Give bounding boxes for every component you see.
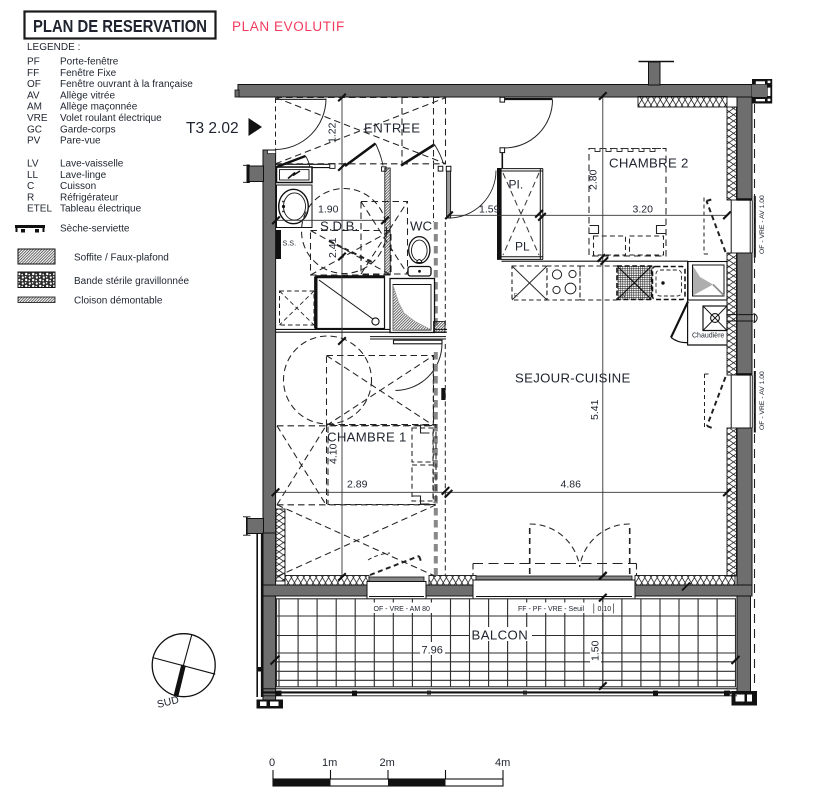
svg-text:Porte-fenêtre: Porte-fenêtre [60,57,119,68]
svg-text:ENTREE: ENTREE [364,121,421,136]
svg-text:Soffite / Faux-plafond: Soffite / Faux-plafond [74,253,169,264]
svg-text:Cloison démontable: Cloison démontable [74,296,163,307]
svg-text:2.41: 2.41 [327,237,339,258]
svg-text:1m: 1m [322,757,337,769]
svg-text:5.41: 5.41 [589,399,601,420]
svg-text:PF: PF [27,57,40,68]
svg-text:4.86: 4.86 [561,479,582,491]
svg-text:Tableau électrique: Tableau électrique [60,204,142,215]
svg-text:LEGENDE :: LEGENDE : [27,42,80,53]
svg-text:Garde-corps: Garde-corps [60,124,116,135]
svg-text:ETEL: ETEL [27,204,52,215]
svg-text:CHAMBRE 2: CHAMBRE 2 [609,156,689,171]
svg-text:0.10: 0.10 [598,606,612,613]
svg-text:Réfrigérateur: Réfrigérateur [60,192,119,203]
svg-text:LL: LL [27,170,39,181]
svg-text:1.90: 1.90 [318,204,339,216]
svg-text:1.59: 1.59 [479,204,500,216]
svg-text:0: 0 [269,757,275,769]
svg-text:GC: GC [27,124,42,135]
svg-text:Pare-vue: Pare-vue [60,136,101,147]
svg-text:Chaudière: Chaudière [692,333,724,340]
svg-text:SUD: SUD [156,694,181,711]
svg-text:SEJOUR-CUISINE: SEJOUR-CUISINE [515,371,631,386]
svg-text:T3 2.02: T3 2.02 [186,120,239,137]
svg-text:Fenêtre Fixe: Fenêtre Fixe [60,68,117,79]
svg-text:F.: F. [514,293,519,299]
svg-text:PLAN EVOLUTIF: PLAN EVOLUTIF [232,19,345,34]
svg-text:Allège vitrée: Allège vitrée [60,90,115,101]
svg-text:Bande stérile gravillonnée: Bande stérile gravillonnée [74,276,190,287]
svg-text:PL: PL [515,240,530,254]
svg-text:Sèche-serviette: Sèche-serviette [60,224,130,235]
svg-text:3.20: 3.20 [633,204,654,216]
svg-text:LV: LV [620,293,627,299]
svg-text:OF - VRE - AV 1.00: OF - VRE - AV 1.00 [759,371,766,430]
svg-text:2.80: 2.80 [588,169,600,190]
svg-text:FF - PF - VRE - Seuil: FF - PF - VRE - Seuil [518,606,585,613]
svg-text:1.50: 1.50 [590,640,602,661]
svg-text:C: C [27,181,34,192]
svg-text:2.89: 2.89 [347,479,368,491]
svg-text:S.S.: S.S. [283,239,297,248]
svg-text:Allège maçonnée: Allège maçonnée [60,102,138,113]
svg-text:1.22: 1.22 [327,122,339,143]
svg-text:Cuisson: Cuisson [60,181,96,192]
svg-text:VRE: VRE [27,113,48,124]
svg-text:OF - VRE - AM 80: OF - VRE - AM 80 [374,606,431,613]
svg-text:R: R [27,192,34,203]
svg-text:7.96: 7.96 [422,645,443,657]
svg-text:PV: PV [27,136,41,147]
svg-text:OF: OF [27,79,41,90]
svg-text:FF: FF [27,68,39,79]
svg-text:4.10: 4.10 [328,443,340,464]
svg-text:WC: WC [410,219,432,234]
svg-text:OF - VRE - AV 1.00: OF - VRE - AV 1.00 [759,195,766,254]
svg-text:Lave-linge: Lave-linge [60,170,107,181]
svg-text:AV: AV [27,90,40,101]
svg-text:BALCON: BALCON [472,628,529,643]
svg-text:2m: 2m [380,757,395,769]
svg-text:PLAN DE RESERVATION: PLAN DE RESERVATION [33,16,207,36]
svg-text:4m: 4m [495,757,510,769]
svg-text:PI.: PI. [509,178,524,192]
svg-text:Lave-vaisselle: Lave-vaisselle [60,159,124,170]
svg-text:AM: AM [27,102,42,113]
svg-text:Volet roulant électrique: Volet roulant électrique [60,113,162,124]
svg-text:Fenêtre ouvrant à la française: Fenêtre ouvrant à la française [60,79,193,90]
svg-text:CHAMBRE 1: CHAMBRE 1 [327,430,407,445]
svg-text:LV: LV [27,159,39,170]
